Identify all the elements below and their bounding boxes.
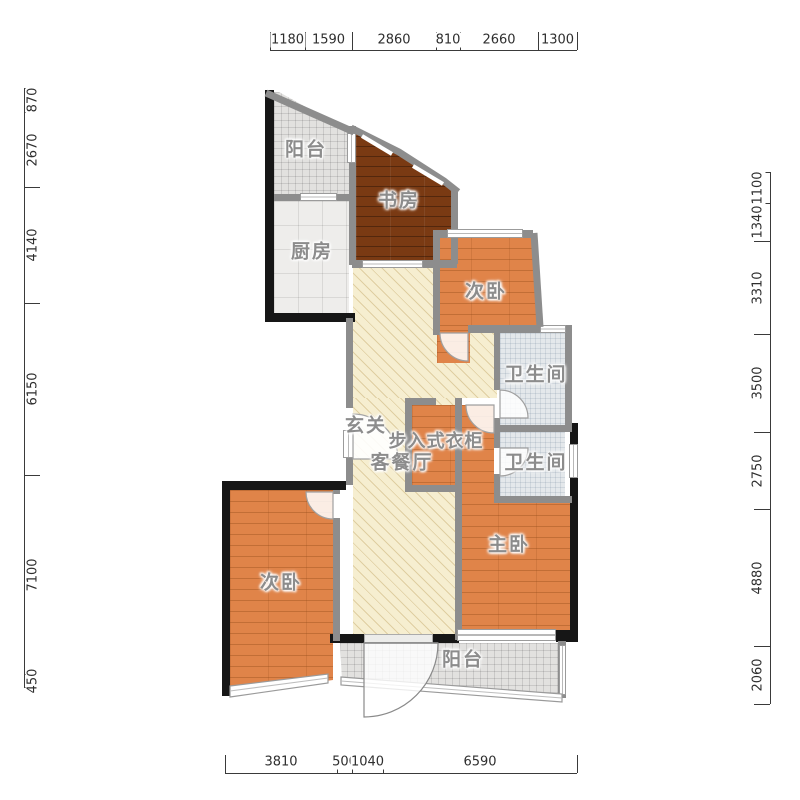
- dim-label: 3310: [751, 270, 766, 305]
- dim-tick: [754, 646, 770, 647]
- dim-label: 450: [26, 667, 41, 694]
- dim-tick: [754, 432, 770, 433]
- room-label-bathroom-bottom: 卫生间: [504, 448, 567, 475]
- dim-tick: [538, 32, 539, 50]
- dim-label: 1100: [751, 170, 766, 205]
- dim-tick: [225, 755, 226, 773]
- dim-tick: [754, 704, 770, 705]
- dim-tick: [352, 32, 353, 50]
- dim-tick: [754, 509, 770, 510]
- wall: [346, 318, 353, 408]
- dim-label: 7100: [26, 557, 41, 592]
- dim-line: [225, 773, 577, 774]
- dim-label: 2660: [481, 33, 516, 48]
- wall: [222, 481, 346, 490]
- room-label-bedroom-top: 次卧: [465, 277, 507, 304]
- dim-tick: [24, 475, 40, 476]
- dim-label: 1180: [270, 33, 305, 48]
- dim-label: 3500: [751, 365, 766, 400]
- wall: [333, 518, 340, 641]
- window: [347, 133, 356, 163]
- window: [447, 229, 523, 238]
- wall: [494, 333, 500, 390]
- dim-label: 870: [26, 87, 41, 114]
- dim-line: [770, 172, 771, 704]
- dim-tick: [577, 755, 578, 773]
- window: [300, 193, 337, 201]
- room-label-master: 主卧: [488, 530, 530, 557]
- dim-tick: [24, 303, 40, 304]
- wall: [346, 458, 353, 485]
- dim-tick: [754, 334, 770, 335]
- room-label-living: 客餐厅: [370, 448, 433, 475]
- dim-label: 6590: [462, 755, 497, 770]
- dim-line: [270, 50, 577, 51]
- wall: [265, 90, 274, 322]
- wall: [494, 425, 572, 432]
- dim-tick: [754, 241, 770, 242]
- wall: [405, 485, 462, 492]
- wall: [265, 313, 355, 322]
- floor-plan: 阳台 书房 厨房 次卧 卫生间 玄关 步入式衣柜 客餐厅 卫生间 主卧 次卧 阳…: [0, 0, 800, 800]
- room-label-kitchen: 厨房: [291, 237, 333, 264]
- wall: [433, 230, 440, 335]
- wall: [494, 418, 500, 448]
- dim-tick: [305, 32, 306, 50]
- dim-tick: [577, 32, 578, 50]
- room-label-entry: 玄关: [345, 411, 387, 438]
- dim-label: 4140: [26, 227, 41, 262]
- dim-label: 4880: [751, 560, 766, 595]
- dim-tick: [24, 187, 40, 188]
- window: [559, 645, 566, 695]
- wall: [494, 496, 572, 503]
- window: [362, 260, 423, 268]
- wall: [451, 188, 458, 264]
- dim-label: 810: [435, 33, 462, 48]
- room-label-balcony-bottom: 阳台: [442, 645, 484, 672]
- room-label-balcony-top: 阳台: [285, 135, 327, 162]
- dim-label: 1300: [540, 33, 575, 48]
- dim-label: 3810: [263, 755, 298, 770]
- dim-label: 2750: [751, 453, 766, 488]
- balcony-door-threshold: [364, 634, 433, 643]
- dim-label: 2860: [376, 33, 411, 48]
- room-label-bedroom-bottom: 次卧: [260, 568, 302, 595]
- window: [457, 629, 556, 641]
- dim-label: 1340: [751, 204, 766, 239]
- wall: [333, 490, 340, 494]
- dim-label: 6150: [26, 371, 41, 406]
- window: [569, 444, 578, 478]
- dim-label: 2060: [751, 657, 766, 692]
- dim-label: 1590: [311, 33, 346, 48]
- dim-label: 2670: [26, 132, 41, 167]
- wall: [222, 481, 230, 696]
- dim-label: 1040: [350, 755, 385, 770]
- room-label-study: 书房: [378, 186, 420, 213]
- bedroom-top-door-nook: [437, 330, 470, 363]
- room-label-bathroom-top: 卫生间: [504, 360, 567, 387]
- window: [540, 325, 566, 333]
